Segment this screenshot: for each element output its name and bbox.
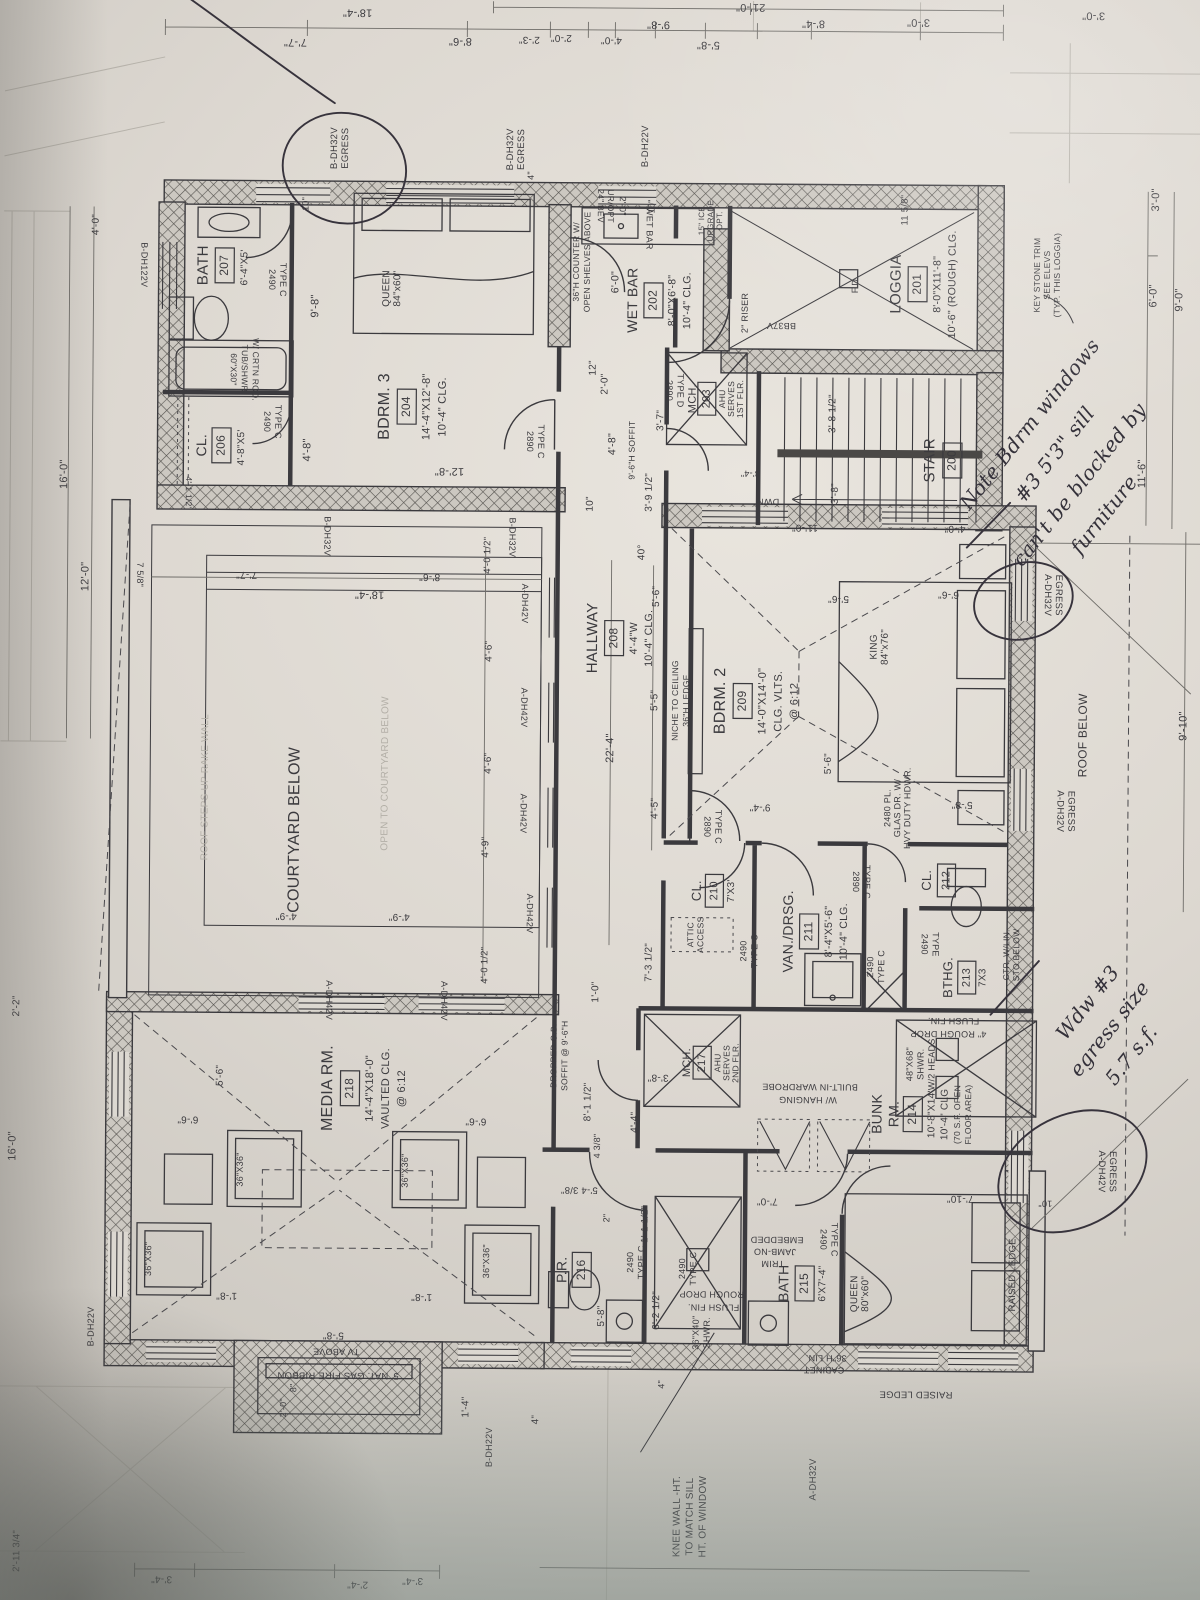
plan-text: 9'-8" [309,294,321,317]
plan-text: TYPE C [829,1223,839,1257]
plan-text: 5'-5" [649,690,660,711]
room-number-213: 213 [961,968,973,987]
plan-text: EMBEDDED [750,1235,803,1245]
plan-text: OPT. [715,211,724,230]
room-number-214: 214 [905,1104,919,1125]
plan-text: 4'-6" [483,752,494,773]
note-key-stone-trim: KEY STONE TRIM [1032,238,1043,313]
plan-text: 3'-8" [647,1072,668,1083]
plan-text: 7'-7" [236,569,257,580]
plan-text: 2490 [865,956,875,977]
plan-text: ROOF STEPS UP RAKE WALL [199,714,211,861]
plan-text: A-DH42V [520,584,530,624]
room-label-mch-203: MCH. [687,384,699,413]
plan-text: 1'-8" [216,1290,237,1301]
plan-text: 5'-6" [823,753,834,774]
note-knee-wall: KNEE WALL -HT. [671,1476,683,1557]
room-number-203: 203 [701,389,713,408]
blueprint-photo: BATH2076'-4"X5'2490TYPE C9'-8"60"X30"TUB… [0,0,1200,1600]
room-label-cl-210: CL. [689,880,704,901]
plan-text: W/ HANGING [779,1095,837,1105]
plan-text: 4'-9" [275,910,296,921]
plan-text: B-DH32V [507,517,517,557]
sink-bath-207 [198,207,260,237]
plan-text: 8" [288,1383,298,1392]
room-number-208: 208 [606,628,620,649]
vanity-bath-215 [748,1301,788,1345]
plan-text: TYPE [931,932,941,957]
plan-text: 2480 PL. [882,789,892,827]
plan-text: 4'-9" [388,911,409,922]
plan-text: A-DH42V [518,794,528,834]
plan-text: CLG. VLTS. [772,671,784,732]
plan-text: 4'-0" [91,214,102,235]
plan-text: 10'-6" (ROUGH) CLG. [946,230,959,338]
plan-text: 22'-4" [604,733,616,763]
plan-text: WET BAR [644,207,654,250]
plan-text: 4" ROUGH DROP [910,1029,986,1040]
plan-text: 2" [601,1214,611,1223]
plan-text: RAISED LEDGE [879,1388,952,1400]
plan-text: TUB/SHWR. [240,344,250,394]
plan-text: 1'-0" [590,981,601,1002]
plan-text: 10'-4" CLG. [681,272,693,329]
plan-text: 3'-8" [830,483,841,504]
plan-text: 10" [585,496,596,512]
plan-text: 2'-0" [278,1398,288,1417]
note-tv-above: TV ABOVE [313,1347,360,1357]
plan-text: CTR. W/LIN. [1001,929,1011,980]
plan-text: 10'-4" CLG. [436,377,448,437]
plan-text: 40° [636,544,647,560]
plan-text: 3'-0" [1150,188,1162,211]
plan-text: 8'-0"X11'-8" [931,256,943,313]
plan-text: 10'-8"X14' [926,1090,937,1138]
plan-text: 4'-0" [600,34,621,45]
plan-text: OPEN SHELVES ABOVE [582,211,593,312]
plan-text: 15" ICE [697,206,706,235]
plan-text: RAISED LEDGE [1007,1238,1019,1311]
room-label-loggia: LOGGIA [887,254,904,313]
plan-text: 11'-0" [792,522,819,533]
plan-text: 12" [588,360,599,376]
plan-text: 6'-0" [1147,284,1159,307]
plan-text: 16'-0" [58,459,70,489]
plan-text: 4'-8" [301,438,313,461]
plan-text: 5'-8" [697,39,720,51]
plan-text: BB37V [767,321,796,331]
bed-queen-bunk [844,1194,1027,1345]
plan-text: 3'-0" [1082,9,1105,21]
plan-text: 2ND FLR. [730,1043,740,1083]
plan-text: 36"H COUNTER W/ [571,222,582,302]
plan-text: 36"X36" [143,1242,153,1276]
plan-text: 2'-2" [11,995,22,1016]
room-number-204: 204 [399,396,413,417]
plan-text: 4'-8" [606,433,618,455]
window-tag-egress: A-DH32V [1042,574,1053,616]
plan-text: 3'-4" [741,469,760,479]
plan-text: EGRESS [516,129,527,170]
plan-text: 18'-4" [355,588,385,600]
plan-text: 4'-0 1/2" [479,947,490,984]
plan-text: 2490 [738,940,748,961]
plan-text: TYPE C [876,950,886,984]
plan-text: (TYP. THIS LOGGIA) [1052,233,1063,318]
plan-text: 10'-4" CLG. [643,610,655,667]
plan-text: 11 5/8" [900,195,911,226]
plan-text: 7'-0" [756,1195,777,1206]
plan-text: 4'-4"W [628,622,640,654]
plan-text: 2490 [267,269,277,290]
plan-text: 4'-8"X5' [236,429,247,465]
room-label-stair: STAIR [921,438,938,482]
plan-text: 7'-7" [284,36,307,48]
plan-text: TYPE C [278,263,288,297]
floor-plan-drawing: BATH2076'-4"X5'2490TYPE C9'-8"60"X30"TUB… [0,0,1200,1600]
plan-text: 80"x60" [860,1276,871,1312]
room-label-cl-206: CL. [193,434,209,457]
plan-text: TYPE C [713,810,723,844]
plan-text: 5'-6" [828,593,849,604]
plan-text: 9'-8" [647,18,670,30]
plan-text: 9'-10" [1177,711,1189,741]
plan-text: 36"X36" [400,1154,410,1188]
plan-text: 14'-4"X18'-0" [364,1055,376,1122]
plan-text: 2490 [920,934,930,955]
plan-text: 3'-4" [402,1575,423,1586]
plan-text: 14'-0"X14'-0" [756,668,768,735]
plan-text: 18'-4" [343,6,373,18]
plan-text: 4'-4" [629,1111,640,1132]
plan-text: SHWR. [702,1317,712,1348]
plan-text: NICHE TO CEILING [670,660,681,741]
plan-text: OPEN TO COURTYARD BELOW [379,696,391,851]
room-number-217: 217 [696,1053,708,1072]
plan-text: 2'-0" [618,197,628,216]
plan-text: B-DH122V [139,242,149,287]
plan-text: 10'-4" CLG. [838,903,850,960]
plan-text: 5'-8" [596,1305,607,1326]
plan-text: B-DH32V [505,128,516,170]
plan-text: 2'-3" [518,34,539,45]
plan-text: KING [869,634,880,660]
plan-text: 4'-0 1/2" [482,537,493,574]
plan-text: 5'-6" [215,1065,226,1086]
plan-text: 6'-0" [609,271,621,293]
plan-text: 24" BEV [596,189,606,223]
plan-text: 4'-6" [484,640,495,661]
plan-text: 2'-0" [599,373,610,394]
plan-text: 36"H LEDGE [681,674,691,726]
plan-text: ROUGH DROP [679,1289,744,1299]
plan-text: A-DH42V [519,688,529,728]
plan-text: 36"X36" [235,1152,245,1186]
plan-text: 2" RISER [740,293,750,334]
plan-text: B-DH22V [484,1427,494,1467]
room-number-206: 206 [214,435,228,456]
plan-text: 4'-0" [944,523,965,534]
plan-text: (70 S.F. OPEN [952,1085,962,1144]
plan-text: 9'-0" [1173,288,1185,311]
sink-pr-216 [606,1300,642,1342]
room-label-van-drsg: VAN./DRSG. [780,890,797,972]
room-number-218: 218 [342,1078,356,1099]
plan-text: EGRESS [1107,1151,1118,1192]
plan-text: 36"H LIN. [806,1353,847,1363]
plan-text: 14'-4"X12'-8" [420,373,432,440]
plan-text: 84"x60" [392,270,403,306]
courtyard-parapet [109,500,130,998]
room-label-bath-215: BATH [775,1265,791,1302]
plan-text: RM. [885,1101,901,1128]
plan-text: 6'-6" [177,1113,198,1124]
plan-text: 7'X3' [726,879,737,902]
plan-text: 10" [1038,1199,1052,1209]
plan-text: 3'-0" [907,16,930,28]
plan-text: A-DH42V [439,981,449,1021]
plan-text: 2'-11 3/4" [11,1530,22,1572]
plan-text: 4 3/8" [592,1134,602,1159]
plan-text: 84"x76" [880,629,891,665]
plan-text: @ 6:12 [788,683,800,720]
room-label-cl-212: CL. [919,870,934,891]
plan-text: FLUSH FIN. [928,1016,980,1026]
plan-text: UR/OPT [606,189,616,223]
room-label-courtyard: COURTYARD BELOW [285,746,303,913]
plan-text: 4" [656,1380,666,1389]
plan-text: TYPE C [636,1245,646,1279]
plan-text: 5'-8" [322,1329,343,1340]
plan-text: A-DH32V [808,1458,819,1500]
plan-text: 7X3 [977,968,988,987]
room-label-media-rm: MEDIA RM. [319,1045,337,1131]
plan-text: ACCESS [695,916,705,953]
note-fire-ribbon: 5' NAT. GAS FIRE RIBBON [277,1369,398,1381]
plan-text: 10'-4" CLG [939,1089,950,1140]
room-number-212: 212 [940,871,952,890]
plan-text: 12'-8" [434,465,464,477]
plan-text: 3'-7" [655,410,666,431]
plan-text: TYPE C [862,865,872,899]
plan-text: 2'-0" [551,32,572,43]
plan-text: 5'-8" [951,799,972,810]
plan-text: 16'-0" [6,1131,18,1161]
plan-text: GLAS DR. W/ [892,779,902,838]
room-label-mch-217: MCH. [681,1048,693,1077]
plan-text: 4" [530,1415,541,1425]
plan-text: 1'-4" [460,1396,471,1417]
plan-text: 3'-4" [151,1573,172,1584]
plan-text: FLUSH FIN. [688,1302,740,1312]
plan-text: 2490 [677,1258,687,1279]
room-number-209: 209 [735,690,749,711]
plan-text: 2490 [818,1229,828,1250]
plan-text: 8'-6" [449,35,472,47]
toilet-cl-212 [947,868,985,886]
plan-text: CABINET [803,1365,844,1375]
note-roof-below: ROOF BELOW [1075,693,1090,777]
plan-text: 2890 [664,380,674,401]
plan-text: HVY DUTY HDWR. [902,767,913,849]
plan-text: 4" [526,171,536,180]
plan-text: 7 5/8" [135,562,145,587]
plan-text: TYPE C [536,425,546,459]
plan-text: 1'-8" [411,1291,432,1302]
plan-text: ATTIC [685,922,695,947]
plan-text: UPGRADE [706,200,715,241]
plan-text: 5'-6" [651,586,662,607]
plan-text: 1'-1 1/2" [639,1206,650,1243]
room-label-wet-bar: WET BAR [624,268,640,333]
plan-text: 3'-9 1/2" [644,473,655,512]
plan-text: 6'-6" [938,589,959,600]
plan-text: 2490 [625,1252,635,1273]
plan-text: 8'-6" [419,571,440,582]
room-label-pr-216: P.R. [553,1256,569,1283]
plan-text: 10" [300,197,310,211]
room-number-200: 200 [944,450,958,471]
room-number-202: 202 [646,290,660,311]
plan-text: 5'-4 3/8" [561,1184,598,1195]
room-number-211: 211 [801,921,815,941]
plan-text: F.D. [850,276,860,293]
plan-text: B-DH22V [640,125,651,167]
room-number-201: 201 [910,274,924,295]
plan-text: EGRESS [1053,575,1064,616]
plan-text: 21'-0" [736,1,766,13]
plan-text: TYPE C [688,1251,698,1285]
plan-text: QUEEN [381,270,392,307]
plan-text: B-DH32V [322,516,332,556]
plan-text: SOFFIT @ 9'-6"H [559,1021,569,1091]
plan-text: SEE ELEVS [1042,250,1052,299]
plan-text: STO.BELOW [1011,929,1021,982]
plan-text: W/2 HEADS [926,1038,936,1090]
plan-text: TYPE C [273,405,283,439]
room-number-207: 207 [217,255,231,276]
plan-text: HT. OF WINDOW [697,1476,709,1558]
stairs [777,377,983,522]
room-number-216: 216 [574,1259,588,1280]
plan-text: @ 6:12 [396,1070,408,1107]
plan-text: 2890 [525,431,535,452]
plan-text: QUEEN [849,1275,860,1312]
plan-text: 6'-2 1/2" [651,1291,662,1330]
plan-text: 2890 [702,816,712,837]
plan-text: 4'-9" [480,836,491,857]
room-label-bthg-213: BTHG. [940,957,955,998]
plan-text: BUILT-IN WARDROBE [762,1082,858,1093]
room-label-hallway: HALLWAY [584,603,601,674]
plan-text: 8'-1 1/2" [582,1082,593,1121]
plan-text: DROPPED G.B. [548,1023,558,1087]
plan-text: 9'-6"H SOFFIT [626,421,636,480]
plan-text: 3'-8 1/2" [827,394,838,433]
plan-text: EGRESS [1065,791,1076,832]
window-tag-egress: B-DH32V [329,127,340,169]
plan-text: 8'-4" [802,17,825,29]
plan-text: 6'-4"X5' [239,249,250,285]
plan-text: 7'-3 1/2" [643,943,654,982]
plan-text: 9'-4" [749,801,770,812]
plan-text: 36"X36" [481,1244,491,1278]
room-label-bdrm-2: BDRM. 2 [712,667,729,734]
plan-text: 8'-0"X6'-8" [666,275,678,327]
plan-text: 2890 [851,871,861,892]
room-number-215: 215 [797,1273,811,1294]
window-tag-egress: A-DH42V [1096,1151,1107,1193]
plan-text: W/ CRTN ROD. [251,338,261,401]
plan-text: 48"X68" [904,1047,914,1081]
plan-text: 4'-5" [650,798,661,819]
plan-text: 2490 [262,411,272,432]
plan-text: 12'-0" [79,562,91,592]
plan-text: FLOOR AREA) [963,1085,973,1145]
room-label-bunk-rm: BUNK [868,1094,884,1134]
plan-text: 60"X30" [229,353,239,385]
plan-text: SHWR. [915,1049,925,1080]
plan-text: 2'-4" [347,1579,368,1590]
plan-text: TYPE C [749,934,759,968]
plan-text: JAMB-NO [754,1247,796,1257]
plan-text: EGRESS [340,128,351,169]
plan-text: VAULTED CLG. [380,1048,393,1129]
plan-text: 8'-4"X5'-6" [823,906,835,958]
plan-text: 6'-6" [465,1115,486,1126]
room-label-bath-207: BATH [195,245,212,285]
plan-text: 1ST FLR. [735,380,745,418]
plan-text: A-DH42V [324,980,334,1020]
paper-sheet: BATH2076'-4"X5'2490TYPE C9'-8"60"X30"TUB… [0,0,1200,1600]
plan-text: B-DH22V [86,1307,96,1347]
plan-text: DWN [757,497,779,507]
room-number-210: 210 [708,881,720,900]
plan-text: 4'-1 1/2" [184,476,194,509]
plan-text: A-DH42V [525,894,535,934]
plan-text: 6'X7'-4" [817,1265,828,1301]
plan-text: TO MATCH SILL [684,1477,696,1555]
plan-text: 36"X40" [691,1316,701,1350]
plan-text: TYPE D [675,374,685,408]
room-label-bdrm-3: BDRM. 3 [376,373,393,440]
plan-text: 7'-10" [947,1193,974,1204]
plan-text: A-DH32V [1054,790,1065,832]
